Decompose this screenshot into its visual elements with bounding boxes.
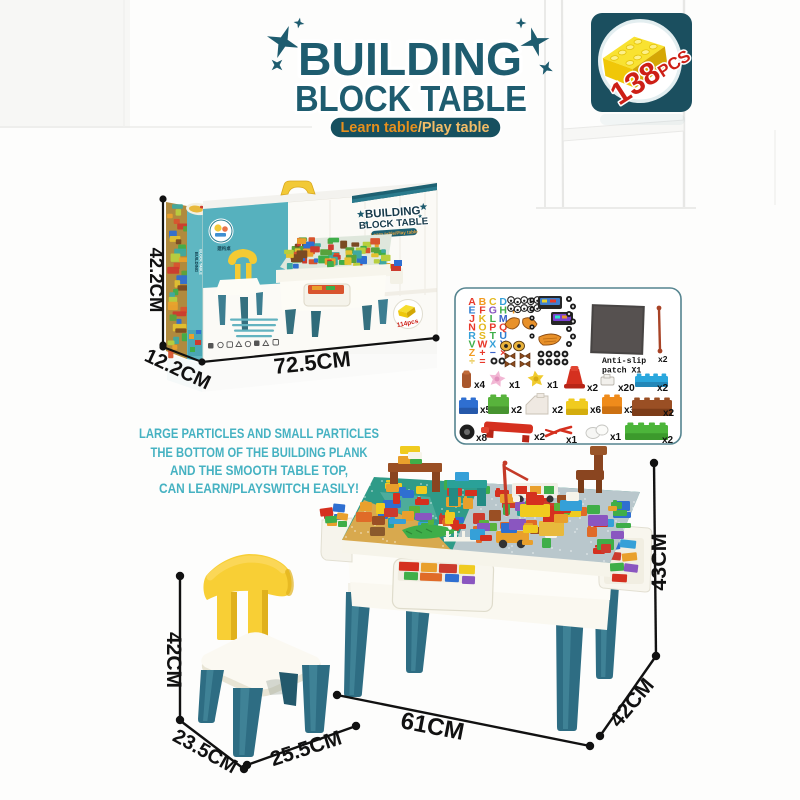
svg-text:x2: x2 bbox=[552, 405, 564, 416]
svg-text:patch X1: patch X1 bbox=[602, 366, 641, 376]
svg-text:Learn table/Play table: Learn table/Play table bbox=[340, 120, 489, 136]
svg-text:x2: x2 bbox=[662, 435, 674, 446]
svg-text:THE BOTTOM OF THE BUILDING PLA: THE BOTTOM OF THE BUILDING PLANK bbox=[151, 445, 368, 460]
svg-text:x4: x4 bbox=[474, 380, 486, 391]
svg-text:建构桌: 建构桌 bbox=[216, 245, 231, 252]
svg-text:AND THE SMOOTH TABLE TOP,: AND THE SMOOTH TABLE TOP, bbox=[170, 463, 348, 478]
svg-text:x2: x2 bbox=[657, 383, 669, 394]
svg-text:x1: x1 bbox=[547, 380, 559, 391]
svg-text:x20: x20 bbox=[618, 383, 635, 394]
svg-text:Anti-slip: Anti-slip bbox=[602, 356, 646, 366]
svg-text:x1: x1 bbox=[610, 432, 622, 443]
svg-text:x1: x1 bbox=[509, 380, 521, 391]
svg-text:x2: x2 bbox=[587, 383, 599, 394]
svg-text:42CM: 42CM bbox=[162, 632, 185, 688]
svg-text:BUILDING: BUILDING bbox=[194, 252, 199, 272]
svg-text:x1: x1 bbox=[566, 435, 578, 446]
svg-text:−: − bbox=[490, 347, 496, 359]
svg-text:x2: x2 bbox=[511, 405, 523, 416]
svg-text:=: = bbox=[479, 356, 485, 368]
svg-text:x6: x6 bbox=[590, 405, 602, 416]
svg-text:42.2CM: 42.2CM bbox=[146, 248, 167, 313]
svg-text:÷: ÷ bbox=[469, 356, 475, 368]
svg-text:43CM: 43CM bbox=[647, 533, 671, 590]
svg-text:x8: x8 bbox=[476, 433, 488, 444]
svg-text:x2: x2 bbox=[658, 354, 668, 364]
svg-text:BLOCK TABLE: BLOCK TABLE bbox=[295, 78, 527, 119]
svg-text:BLOCK TABLE: BLOCK TABLE bbox=[199, 249, 203, 275]
svg-text:x2: x2 bbox=[663, 408, 675, 419]
svg-text:CAN LEARN/PLAYSWITCH EASILY!: CAN LEARN/PLAYSWITCH EASILY! bbox=[159, 481, 359, 496]
svg-text:LARGE PARTICLES AND SMALL PART: LARGE PARTICLES AND SMALL PARTICLES bbox=[139, 426, 379, 441]
svg-text:x2: x2 bbox=[534, 432, 546, 443]
